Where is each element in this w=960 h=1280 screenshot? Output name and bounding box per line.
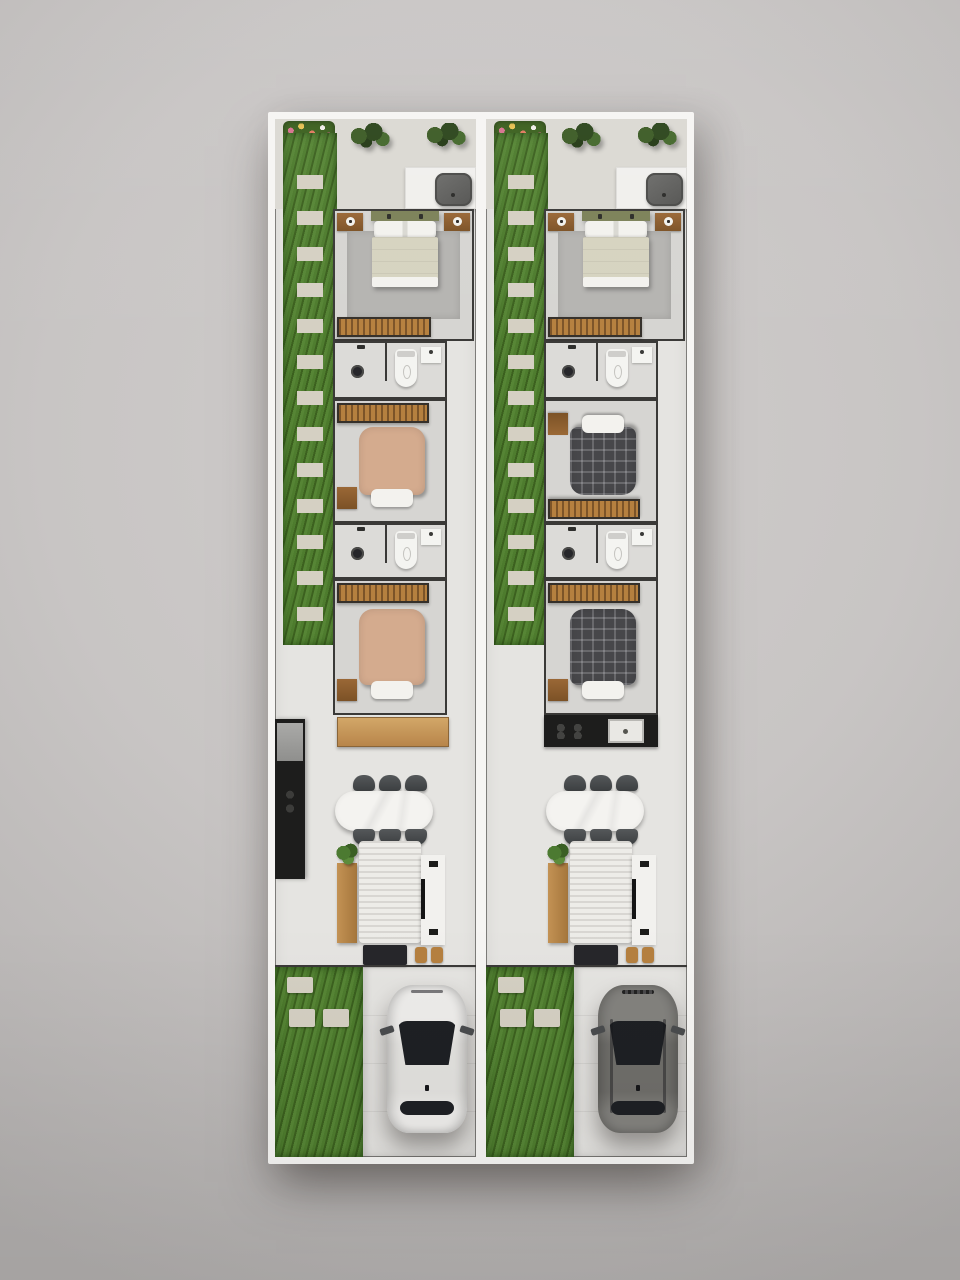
foot-sheet bbox=[583, 277, 649, 287]
tv-icon bbox=[632, 879, 636, 919]
car-roof-rail bbox=[663, 1019, 666, 1113]
stool bbox=[431, 947, 443, 963]
shower-partition bbox=[385, 525, 387, 563]
sink bbox=[632, 347, 652, 363]
parked-car bbox=[598, 985, 678, 1133]
bedroom-2 bbox=[333, 399, 447, 523]
shrub-icon bbox=[632, 123, 678, 147]
dining-table bbox=[335, 791, 433, 831]
stepping-stone bbox=[287, 977, 313, 993]
wood-console bbox=[548, 863, 568, 943]
dining-table bbox=[546, 791, 644, 831]
stepping-stone bbox=[289, 1009, 315, 1027]
sink bbox=[632, 529, 652, 545]
shower-faucet-icon bbox=[357, 345, 365, 349]
master-bedroom bbox=[544, 209, 685, 341]
wardrobe bbox=[337, 403, 429, 423]
bathroom-2 bbox=[333, 523, 447, 579]
kitchen-counter-left-wall bbox=[275, 719, 305, 879]
toilet bbox=[395, 349, 417, 387]
stepping-stone bbox=[534, 1009, 560, 1027]
headboard bbox=[371, 211, 439, 221]
nightstand bbox=[548, 679, 568, 701]
dining-chair bbox=[590, 775, 612, 791]
double-bed bbox=[582, 211, 650, 293]
car-windshield bbox=[397, 1021, 457, 1065]
tv-panel bbox=[632, 855, 656, 945]
plant-icon bbox=[335, 843, 359, 865]
pillows bbox=[585, 221, 647, 238]
car-windshield bbox=[608, 1021, 668, 1065]
dining-chair bbox=[564, 775, 586, 791]
dining-chair bbox=[616, 775, 638, 791]
side-garden-path bbox=[494, 133, 548, 645]
shower-partition bbox=[385, 343, 387, 381]
townhouse-unit-a bbox=[275, 119, 476, 1157]
toilet bbox=[606, 531, 628, 569]
pillows bbox=[374, 221, 436, 238]
car-antenna-icon bbox=[425, 1085, 429, 1091]
entry-step bbox=[574, 945, 618, 965]
dining-chair bbox=[379, 775, 401, 791]
sink bbox=[421, 529, 441, 545]
bedroom-2 bbox=[544, 399, 658, 523]
scene-backdrop bbox=[0, 0, 960, 1280]
parked-car bbox=[387, 985, 467, 1133]
stepping-stone bbox=[498, 977, 524, 993]
front-lawn bbox=[275, 967, 363, 1157]
car-antenna-icon bbox=[636, 1085, 640, 1091]
toilet bbox=[606, 349, 628, 387]
wood-sideboard bbox=[337, 717, 449, 747]
fridge bbox=[277, 723, 303, 761]
single-bed bbox=[570, 609, 636, 685]
floor-plan bbox=[268, 112, 694, 1164]
wardrobe bbox=[548, 583, 640, 603]
shower-drain-icon bbox=[351, 547, 364, 560]
bedroom-3 bbox=[544, 579, 658, 715]
nightstand bbox=[337, 679, 357, 701]
nightstand bbox=[548, 213, 574, 231]
car-grille-icon bbox=[622, 990, 654, 994]
side-garden-path bbox=[283, 133, 337, 645]
plant-icon bbox=[546, 843, 570, 865]
laundry-tub bbox=[646, 173, 683, 206]
wardrobe bbox=[337, 317, 431, 337]
foot-sheet bbox=[372, 277, 438, 287]
single-bed bbox=[570, 427, 636, 495]
shower-faucet-icon bbox=[568, 527, 576, 531]
bedroom-2-furniture bbox=[546, 401, 656, 521]
wardrobe bbox=[337, 583, 429, 603]
single-bed bbox=[359, 427, 425, 495]
bathroom-2 bbox=[544, 523, 658, 579]
stepping-stone bbox=[323, 1009, 349, 1027]
dining-chair bbox=[405, 775, 427, 791]
pillow bbox=[582, 415, 624, 433]
toilet bbox=[395, 531, 417, 569]
pillow bbox=[582, 681, 624, 699]
nightstand bbox=[548, 413, 568, 435]
laundry-tub bbox=[435, 173, 472, 206]
tv-panel bbox=[421, 855, 445, 945]
single-bed bbox=[359, 609, 425, 685]
living-room-rug bbox=[359, 841, 421, 943]
front-lawn bbox=[486, 967, 574, 1157]
shrub-icon bbox=[345, 123, 391, 149]
kitchen-counter bbox=[544, 715, 658, 747]
entry-step bbox=[363, 945, 407, 965]
wood-console bbox=[337, 863, 357, 943]
living-room-rug bbox=[570, 841, 632, 943]
pillow bbox=[371, 681, 413, 699]
pillow bbox=[371, 489, 413, 507]
shrub-icon bbox=[421, 123, 467, 147]
headboard bbox=[582, 211, 650, 221]
car-rear-window bbox=[400, 1101, 454, 1115]
bathroom-1 bbox=[544, 341, 658, 399]
bedroom-2-furniture bbox=[335, 401, 445, 521]
sink bbox=[421, 347, 441, 363]
tv-icon bbox=[421, 879, 425, 919]
townhouse-unit-b bbox=[486, 119, 687, 1157]
wardrobe bbox=[548, 499, 640, 519]
stool bbox=[415, 947, 427, 963]
shower-partition bbox=[596, 343, 598, 381]
stool bbox=[626, 947, 638, 963]
bedroom-3 bbox=[333, 579, 447, 715]
shower-faucet-icon bbox=[357, 527, 365, 531]
car-grille-icon bbox=[411, 990, 443, 993]
car-roof-rail bbox=[610, 1019, 613, 1113]
bedroom-3-furniture bbox=[335, 581, 445, 713]
nightstand bbox=[337, 487, 357, 509]
shower-partition bbox=[596, 525, 598, 563]
shower-drain-icon bbox=[562, 547, 575, 560]
stool bbox=[642, 947, 654, 963]
shower-drain-icon bbox=[351, 365, 364, 378]
car-rear-window bbox=[611, 1101, 665, 1115]
shower-drain-icon bbox=[562, 365, 575, 378]
stepping-stone bbox=[500, 1009, 526, 1027]
wardrobe bbox=[548, 317, 642, 337]
shrub-icon bbox=[556, 123, 602, 149]
dining-chair bbox=[353, 775, 375, 791]
nightstand bbox=[337, 213, 363, 231]
double-bed bbox=[371, 211, 439, 293]
shower-faucet-icon bbox=[568, 345, 576, 349]
bathroom-1 bbox=[333, 341, 447, 399]
master-bedroom bbox=[333, 209, 474, 341]
nightstand bbox=[655, 213, 681, 231]
nightstand bbox=[444, 213, 470, 231]
bedroom-3-furniture bbox=[546, 581, 656, 713]
kitchen-sink bbox=[608, 719, 644, 743]
